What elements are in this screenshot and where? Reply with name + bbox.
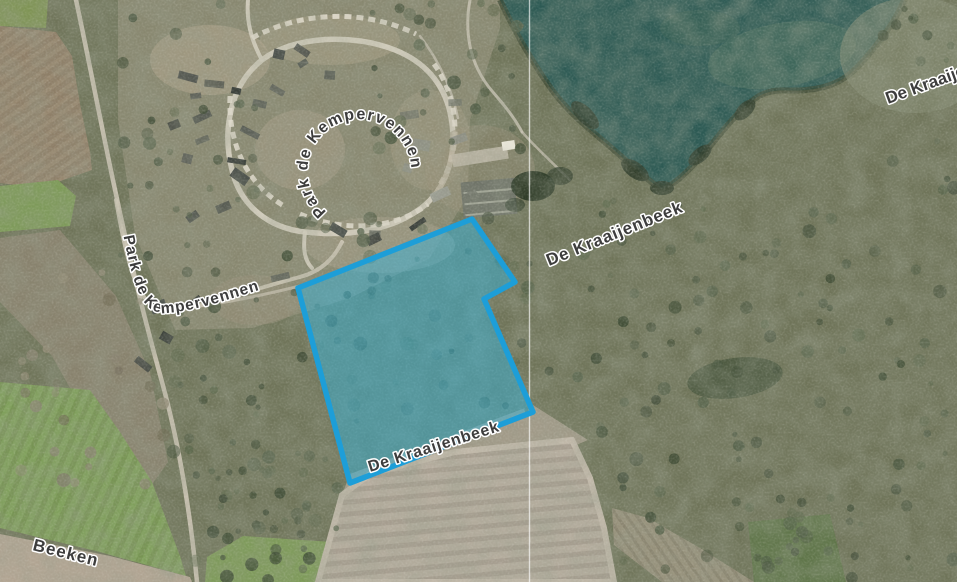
map-viewport[interactable]: Park de Kempervennen Park de Kempervenne… [0, 0, 957, 582]
satellite-map: Park de Kempervennen Park de Kempervenne… [0, 0, 957, 582]
